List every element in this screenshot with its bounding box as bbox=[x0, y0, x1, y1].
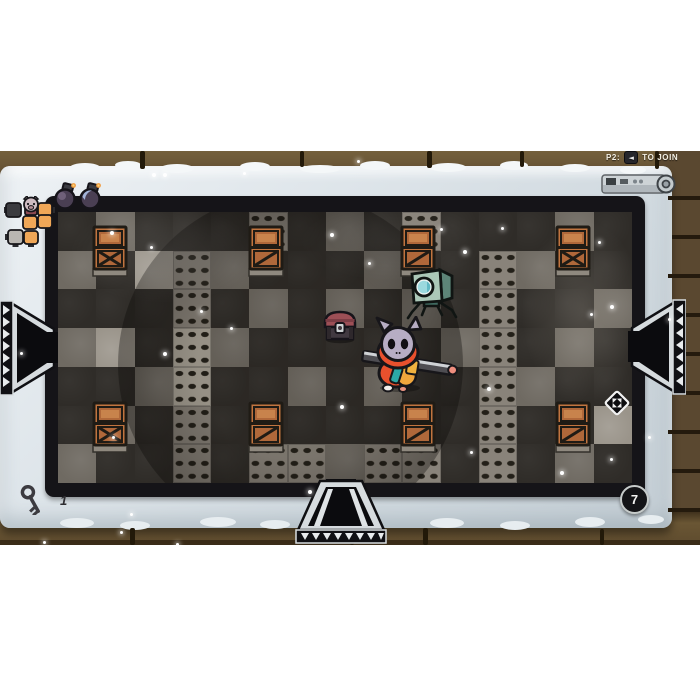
minimap-room bbox=[24, 231, 38, 244]
door-right[interactable] bbox=[628, 298, 686, 396]
sparkle bbox=[308, 490, 312, 494]
wooden-crate[interactable] bbox=[248, 225, 284, 282]
floor-tile bbox=[58, 406, 96, 445]
minimap-room bbox=[38, 215, 52, 228]
bump bbox=[560, 164, 590, 172]
joint bbox=[423, 528, 428, 545]
bomb-icon bbox=[54, 182, 78, 210]
join-player-label: P2: bbox=[606, 153, 620, 162]
floor-tile bbox=[173, 444, 211, 483]
floor-tile bbox=[58, 328, 96, 367]
key-icon bbox=[16, 485, 50, 515]
floor-tile bbox=[326, 406, 364, 445]
bump bbox=[360, 161, 390, 170]
seam bbox=[672, 235, 700, 239]
floor-tile bbox=[479, 328, 517, 367]
floor-tile bbox=[211, 444, 249, 483]
joint bbox=[130, 528, 135, 545]
bump bbox=[300, 165, 340, 173]
bump low bbox=[638, 515, 664, 524]
bump low bbox=[430, 518, 464, 528]
sparkle bbox=[357, 160, 360, 163]
scroll-decoration bbox=[600, 168, 676, 202]
key-count: 1 bbox=[60, 493, 67, 508]
room-number-badge: 7 bbox=[620, 485, 649, 514]
bump low bbox=[500, 521, 530, 530]
pig-face-icon bbox=[24, 196, 38, 215]
sparkle bbox=[648, 436, 651, 439]
floor-tile bbox=[96, 367, 134, 406]
floor-tile bbox=[211, 406, 249, 445]
floor-tile bbox=[58, 367, 96, 406]
sparkle bbox=[470, 451, 473, 454]
wooden-crate[interactable] bbox=[555, 225, 591, 282]
sparkle bbox=[43, 541, 46, 544]
floor-tile bbox=[58, 444, 96, 483]
wooden-crate[interactable] bbox=[555, 401, 591, 458]
bump low bbox=[260, 520, 290, 529]
floor-tile bbox=[211, 212, 249, 251]
joint bbox=[427, 151, 432, 168]
sparkle bbox=[110, 231, 114, 235]
floor-tile bbox=[555, 367, 593, 406]
floor-tile bbox=[364, 406, 402, 445]
bump bbox=[70, 163, 100, 172]
key-counter: 1 bbox=[16, 485, 67, 515]
floor-tile bbox=[96, 289, 134, 328]
floor-tile bbox=[211, 251, 249, 290]
floor-tile bbox=[249, 289, 287, 328]
sparkle bbox=[610, 305, 614, 309]
minimap bbox=[4, 196, 58, 252]
seam bbox=[672, 469, 700, 473]
floor-tile bbox=[517, 289, 555, 328]
room-number: 7 bbox=[631, 492, 638, 507]
wooden-crate[interactable] bbox=[400, 401, 436, 458]
sparkle bbox=[112, 436, 115, 439]
sparkle bbox=[230, 327, 233, 330]
floor-tile bbox=[479, 367, 517, 406]
minimap-room bbox=[23, 216, 37, 229]
robot-enemy[interactable] bbox=[406, 262, 458, 320]
floor-tile bbox=[594, 444, 632, 483]
floor-tile bbox=[173, 328, 211, 367]
floor-tile bbox=[58, 289, 96, 328]
bump bbox=[430, 163, 466, 172]
minimap-room bbox=[38, 203, 52, 216]
floor-tile bbox=[173, 289, 211, 328]
sparkle bbox=[440, 228, 443, 231]
floor-tile bbox=[135, 289, 173, 328]
bump low bbox=[60, 518, 94, 528]
bump low bbox=[120, 521, 150, 530]
floor-tile bbox=[288, 251, 326, 290]
floor-tile bbox=[479, 444, 517, 483]
floor-tile bbox=[517, 328, 555, 367]
bump low bbox=[200, 517, 236, 527]
door-bottom[interactable] bbox=[292, 479, 390, 545]
door-left[interactable] bbox=[0, 299, 58, 397]
gamepad-button-icon: ◄ bbox=[624, 151, 638, 164]
floor-tile bbox=[249, 367, 287, 406]
sparkle bbox=[120, 531, 123, 534]
floor-tile bbox=[517, 406, 555, 445]
sparkle bbox=[610, 458, 613, 461]
sparkle bbox=[163, 352, 167, 356]
minimap-room bbox=[8, 230, 23, 244]
floor-tile bbox=[58, 251, 96, 290]
floor-tile bbox=[249, 328, 287, 367]
floor-tile bbox=[288, 212, 326, 251]
floor-tile bbox=[211, 289, 249, 328]
sparkle bbox=[176, 543, 179, 546]
sparkle bbox=[560, 471, 564, 475]
sparkle bbox=[368, 262, 371, 265]
sparkle bbox=[130, 513, 133, 516]
floor-tile bbox=[594, 328, 632, 367]
bomb-icon bbox=[79, 182, 103, 210]
sparkle bbox=[463, 250, 467, 254]
floor-tile bbox=[326, 251, 364, 290]
floor-tile bbox=[58, 212, 96, 251]
minimap-room bbox=[6, 203, 21, 217]
floor-tile bbox=[555, 328, 593, 367]
floor-tile bbox=[517, 212, 555, 251]
floor-tile bbox=[517, 251, 555, 290]
joint bbox=[520, 151, 524, 167]
floor-tile bbox=[364, 444, 402, 483]
seam bbox=[668, 274, 700, 278]
arena-floor bbox=[58, 212, 632, 483]
sparkle bbox=[20, 352, 23, 355]
sparkle bbox=[330, 233, 334, 237]
bump bbox=[160, 164, 194, 173]
joint bbox=[600, 529, 604, 545]
player-hooded-cat bbox=[358, 316, 458, 394]
diamond-pickup-icon[interactable] bbox=[604, 390, 630, 416]
game-screen: P2: ◄ TO JOIN 1 7 bbox=[0, 0, 700, 700]
bump bbox=[240, 162, 270, 171]
sparkle bbox=[668, 318, 671, 321]
join-action-label: TO JOIN bbox=[642, 153, 678, 162]
wooden-crate[interactable] bbox=[92, 401, 128, 458]
sparkle bbox=[340, 405, 344, 409]
floor-tile bbox=[173, 212, 211, 251]
floor-tile bbox=[479, 251, 517, 290]
joint bbox=[300, 151, 304, 167]
floor-tile bbox=[326, 444, 364, 483]
sparkle bbox=[598, 241, 601, 244]
floor-tile bbox=[479, 406, 517, 445]
floor-tile bbox=[135, 328, 173, 367]
join-prompt[interactable]: P2: ◄ TO JOIN bbox=[606, 151, 678, 164]
bomb-slots bbox=[54, 182, 103, 210]
floor-tile bbox=[288, 406, 326, 445]
sparkle bbox=[501, 227, 504, 230]
floor-tile bbox=[173, 406, 211, 445]
floor-tile bbox=[364, 251, 402, 290]
floor-tile bbox=[441, 444, 479, 483]
floor-tile bbox=[441, 212, 479, 251]
floor-tile bbox=[555, 289, 593, 328]
seam bbox=[668, 508, 700, 512]
floor-tile bbox=[135, 367, 173, 406]
treasure-chest[interactable] bbox=[321, 308, 359, 344]
floor-tile bbox=[479, 212, 517, 251]
floor-tile bbox=[594, 212, 632, 251]
seam bbox=[668, 430, 700, 434]
floor-tile bbox=[135, 406, 173, 445]
joint bbox=[140, 151, 145, 169]
bump low bbox=[575, 517, 605, 527]
floor-tile bbox=[173, 251, 211, 290]
floor-tile bbox=[211, 328, 249, 367]
floor-tile bbox=[594, 251, 632, 290]
floor-tile bbox=[211, 367, 249, 406]
floor-tile bbox=[517, 444, 555, 483]
sparkle bbox=[200, 310, 203, 313]
floor-tile bbox=[288, 367, 326, 406]
sparkle bbox=[590, 313, 593, 316]
floor-tile bbox=[173, 367, 211, 406]
bump bbox=[115, 161, 141, 169]
sparkle bbox=[163, 173, 167, 177]
sparkle bbox=[487, 387, 491, 391]
floor-tile bbox=[441, 406, 479, 445]
floor-tile bbox=[96, 328, 134, 367]
floor-tile bbox=[135, 251, 173, 290]
floor-tile bbox=[288, 444, 326, 483]
sparkle bbox=[150, 246, 153, 249]
floor-tile bbox=[479, 289, 517, 328]
floor-tile bbox=[135, 212, 173, 251]
floor-tile bbox=[517, 367, 555, 406]
floor-tile bbox=[135, 444, 173, 483]
wooden-crate[interactable] bbox=[248, 401, 284, 458]
sparkle bbox=[152, 173, 156, 177]
floor-tile bbox=[364, 212, 402, 251]
floor-tile bbox=[326, 212, 364, 251]
sparkle bbox=[243, 172, 246, 175]
